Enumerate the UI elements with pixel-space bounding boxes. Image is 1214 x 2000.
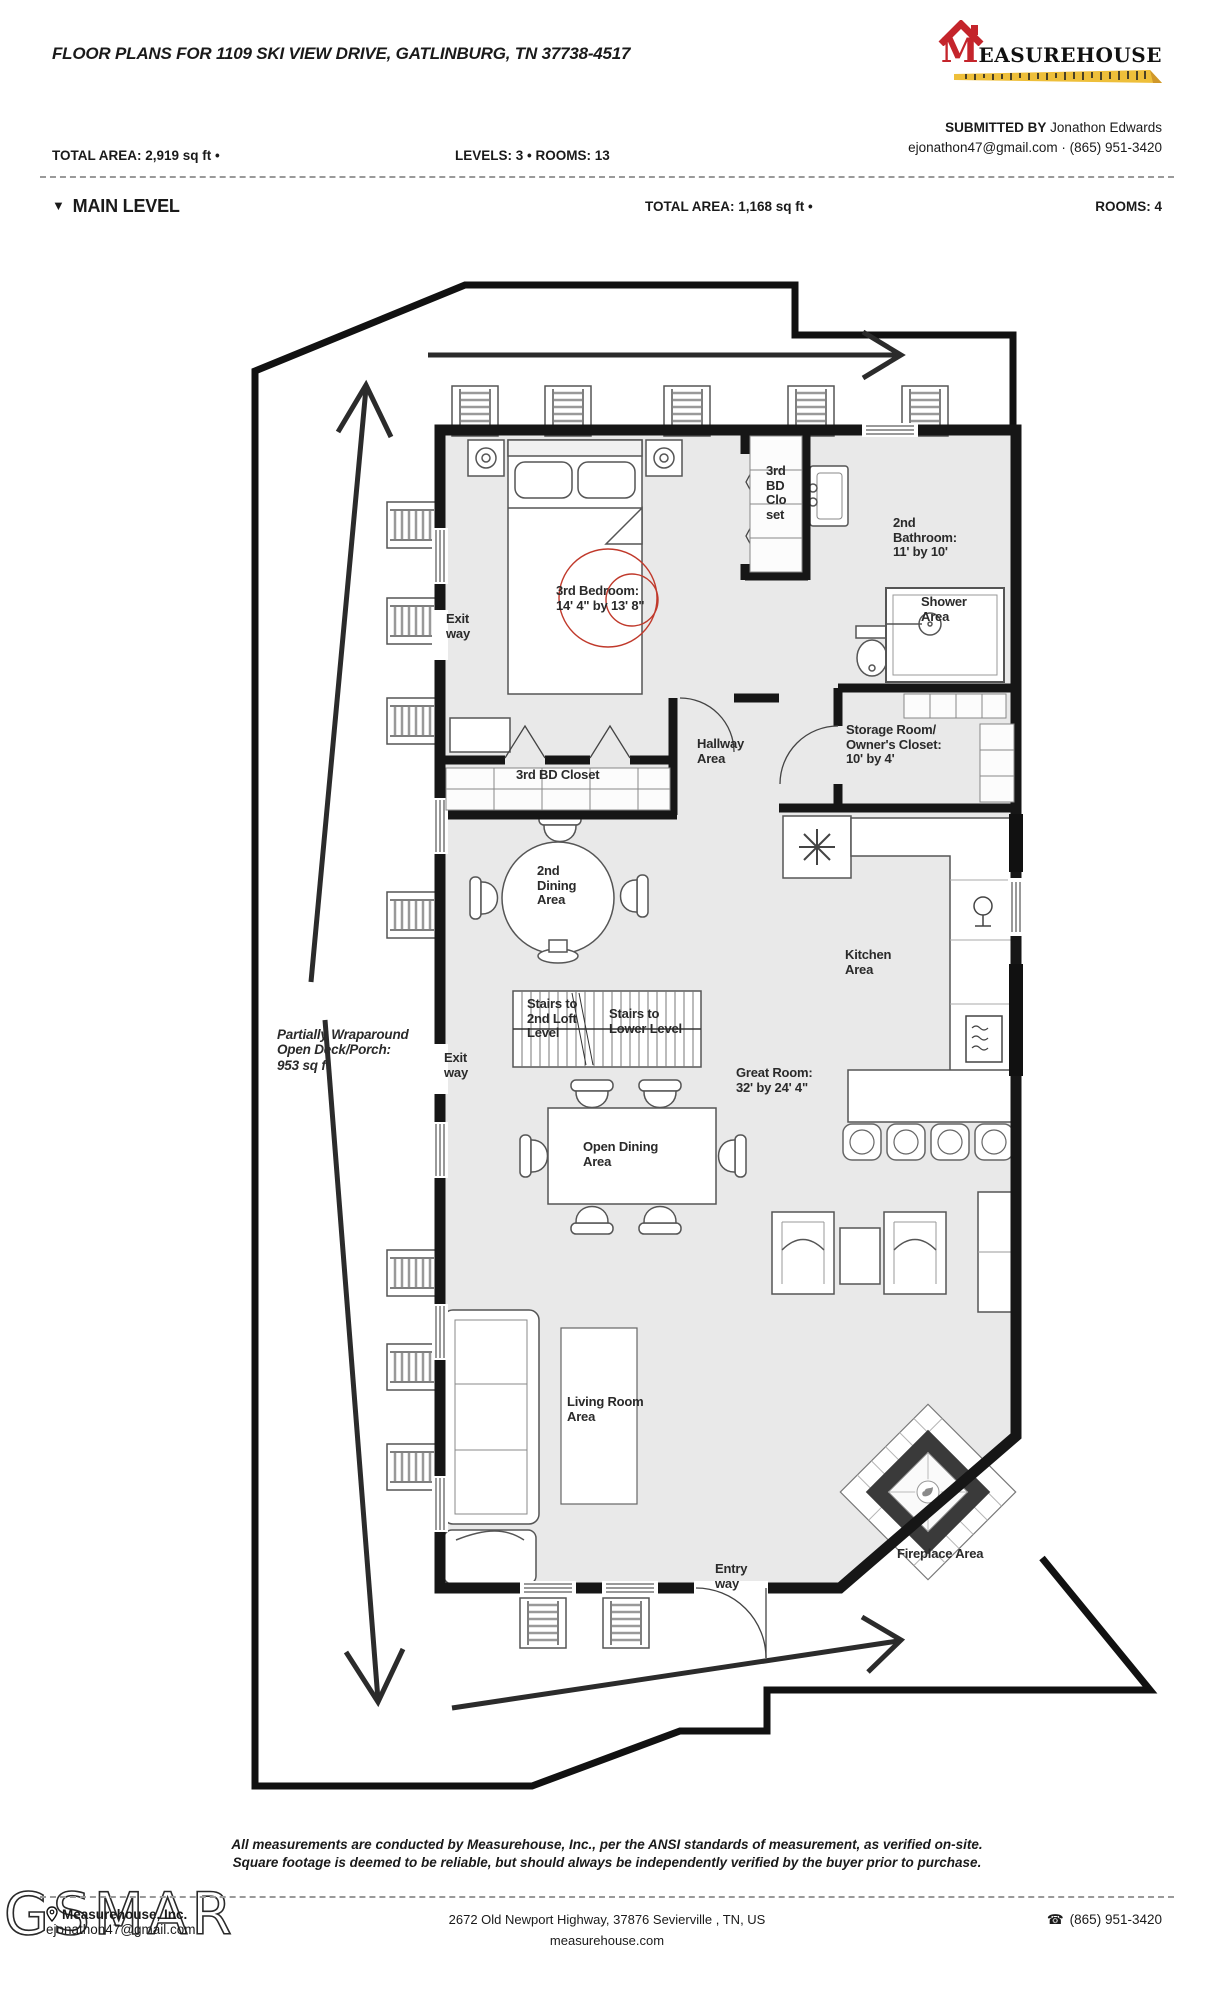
floor-plan [0,240,1214,1810]
label-stairs-loft: Stairs to 2nd Loft Level [527,997,577,1041]
label-deck-porch: Partially Wraparound Open Deck/Porch: 95… [277,1027,409,1073]
submitted-by: SUBMITTED BY Jonathon Edwards [945,120,1162,135]
page-title: FLOOR PLANS FOR 1109 SKI VIEW DRIVE, GAT… [52,44,630,64]
label-2nd-bathroom: 2nd Bathroom: 11' by 10' [893,516,957,560]
label-open-dining: Open Dining Area [583,1140,658,1169]
submitted-by-label: SUBMITTED BY [945,120,1046,135]
label-3rd-bd-closet: 3rd BD Closet [516,768,599,783]
label-exit-way-upper: Exit way [446,612,470,641]
footer-address: 2672 Old Newport Highway, 37876 Seviervi… [0,1910,1214,1931]
ruler-icon [954,70,1162,86]
disclaimer-line-1: All measurements are conducted by Measur… [0,1836,1214,1854]
level-rooms: ROOMS: 4 [1095,199,1162,214]
label-living-room: Living Room Area [567,1395,644,1424]
label-storage-room: Storage Room/ Owner's Closet: 10' by 4' [846,723,941,767]
disclaimer-line-2: Square footage is deemed to be reliable,… [0,1854,1214,1872]
label-3rd-bedroom: 3rd Bedroom: 14' 4" by 13' 8" [556,584,644,613]
disclaimer: All measurements are conducted by Measur… [0,1836,1214,1872]
house-roof-icon [937,20,985,46]
label-stairs-lower: Stairs to Lower Level [609,1007,682,1036]
label-3rd-bd-closet-column: 3rd BD Clo set [766,464,786,523]
footer-website: measurehouse.com [0,1931,1214,1952]
submitted-by-name: Jonathon Edwards [1046,120,1162,135]
phone-icon: ☎ [1047,1912,1064,1927]
label-kitchen-area: Kitchen Area [845,948,891,977]
label-fireplace-area: Fireplace Area [897,1547,983,1562]
header-divider [40,176,1174,178]
label-hallway-area: Hallway Area [697,737,744,766]
floor-plan-page: FLOOR PLANS FOR 1109 SKI VIEW DRIVE, GAT… [0,0,1214,2000]
measurehouse-logo: MEASUREHOUSE [940,34,1162,86]
level-total-area: TOTAL AREA: 1,168 sq ft • [645,199,813,214]
levels-rooms-stat: LEVELS: 3 • ROOMS: 13 [455,148,610,163]
logo-text: EASUREHOUSE [979,43,1162,67]
label-great-room: Great Room: 32' by 24' 4" [736,1066,813,1095]
label-2nd-dining-area: 2nd Dining Area [537,864,576,908]
footer-address-block: 2672 Old Newport Highway, 37876 Seviervi… [0,1910,1214,1952]
level-name: MAIN LEVEL [73,196,180,216]
label-exit-way-lower: Exit way [444,1051,468,1080]
level-header: ▼MAIN LEVEL [52,196,180,217]
footer-phone: (865) 951-3420 [1070,1912,1162,1927]
contact-line: ejonathon47@gmail.com · (865) 951-3420 [908,140,1162,155]
floor-plan-drawing [0,240,1214,1810]
footer-divider [40,1896,1174,1898]
label-entry-way: Entry way [715,1562,747,1591]
collapse-triangle-icon: ▼ [52,198,65,213]
logo-wordmark: MEASUREHOUSE [941,34,1162,68]
footer-phone-block: ☎(865) 951-3420 [1047,1912,1162,1928]
label-shower-area: Shower Area [921,595,967,624]
total-area-stat: TOTAL AREA: 2,919 sq ft • [52,148,220,163]
